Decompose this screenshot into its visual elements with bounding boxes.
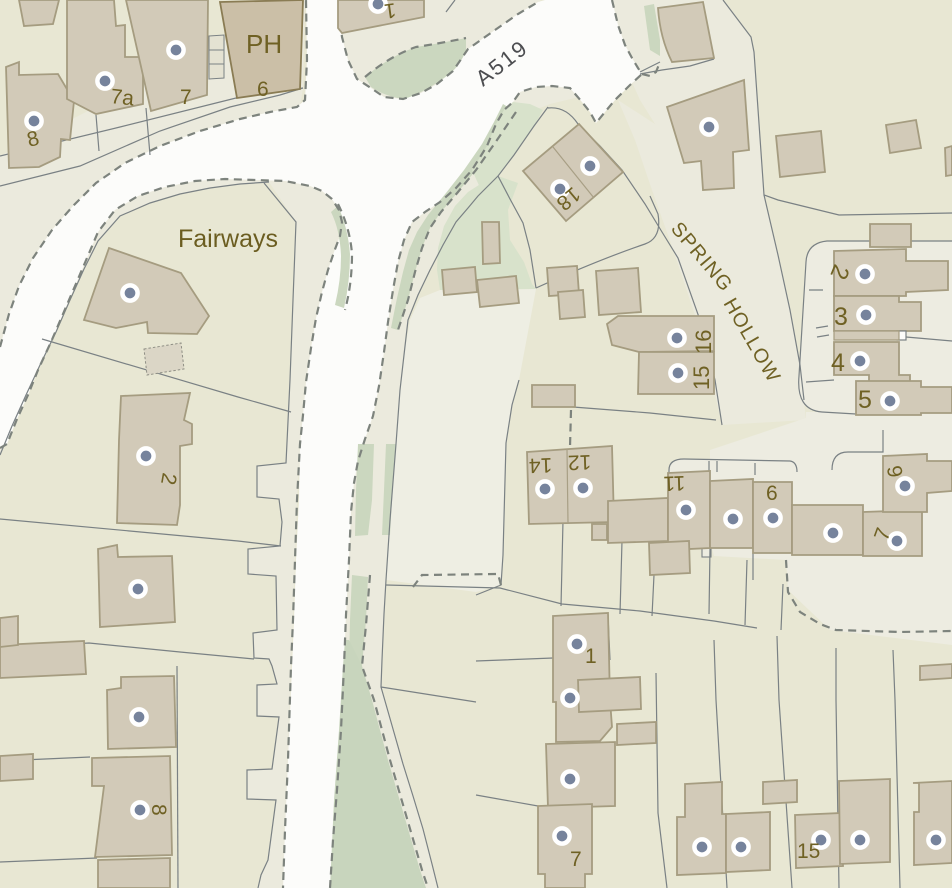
svg-text:15: 15 [797, 840, 820, 863]
svg-text:PH: PH [246, 29, 282, 59]
svg-text:7: 7 [180, 86, 192, 109]
svg-text:16: 16 [691, 330, 716, 354]
svg-text:7: 7 [570, 848, 582, 871]
svg-text:15: 15 [689, 366, 714, 390]
svg-text:7a: 7a [109, 85, 135, 110]
svg-text:12: 12 [567, 450, 591, 474]
svg-text:5: 5 [858, 386, 872, 414]
svg-text:4: 4 [831, 349, 845, 377]
svg-text:6: 6 [257, 78, 269, 101]
svg-text:14: 14 [528, 453, 552, 477]
svg-text:3: 3 [834, 303, 848, 331]
svg-text:8: 8 [147, 804, 170, 816]
svg-text:6: 6 [766, 482, 778, 505]
svg-text:Fairways: Fairways [178, 225, 278, 253]
svg-text:11: 11 [663, 471, 686, 495]
svg-text:1: 1 [585, 645, 597, 668]
